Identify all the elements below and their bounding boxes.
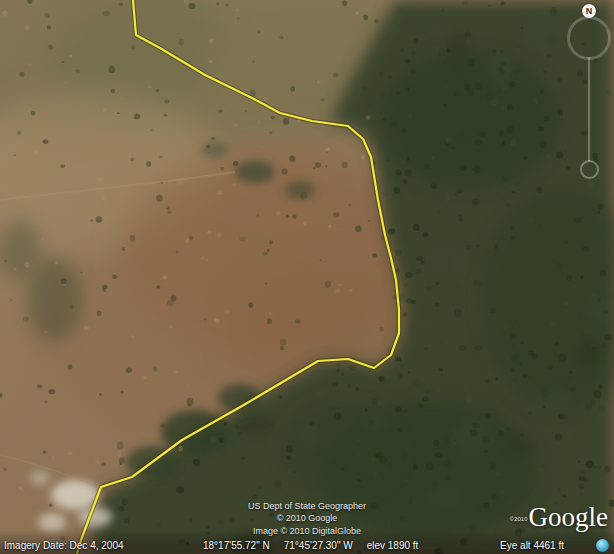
north-label: N [586, 6, 593, 16]
streaming-indicator-icon [596, 539, 609, 552]
attribution-line-1: US Dept of State Geographer [248, 500, 366, 513]
google-watermark: ©2010Google [510, 504, 608, 533]
compass-rotate-ring[interactable] [567, 16, 611, 60]
longitude-value: 71°45'27.30" W [284, 540, 353, 551]
google-earth-viewport: N US Dept of State Geographer © 2010 Goo… [0, 0, 614, 554]
imagery-date: Imagery Date: Dec 4, 2004 [4, 540, 124, 551]
attribution-line-3: Image © 2010 DigitalGlobe [248, 525, 366, 538]
watermark-copyright: ©2010 [510, 516, 528, 522]
move-joystick[interactable] [580, 160, 599, 179]
attribution-line-2: © 2010 Google [248, 512, 366, 525]
map-attribution: US Dept of State Geographer © 2010 Googl… [248, 500, 366, 538]
zoom-slider[interactable] [588, 57, 590, 161]
latitude-value: 18°17'55.72" N [203, 540, 270, 551]
google-logo-text: Google [529, 502, 608, 532]
eye-altitude: Eye alt 4461 ft [500, 540, 564, 551]
pointer-coordinates: 18°17'55.72" N 71°45'27.30" W elev 1890 … [203, 540, 418, 551]
satellite-imagery[interactable] [0, 0, 614, 554]
elevation-value: elev 1890 ft [367, 540, 419, 551]
